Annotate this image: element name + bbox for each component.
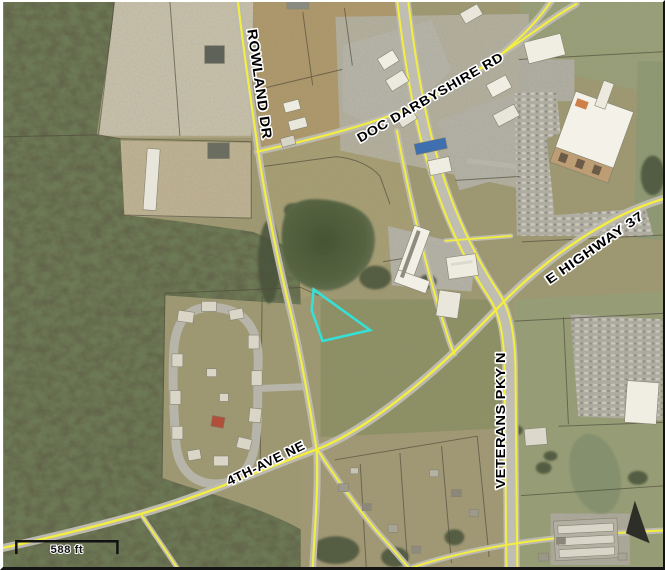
aerial-map: Aerial parcel map with highlighted prope… bbox=[3, 2, 663, 567]
church-building bbox=[524, 427, 547, 446]
road-label-veterans-pky-n: VETERANS PKY N bbox=[493, 352, 508, 489]
motel-building bbox=[446, 254, 478, 280]
scale-bar-label: 588 ft bbox=[51, 544, 84, 556]
red-roof-clubhouse bbox=[211, 415, 226, 428]
map-viewport[interactable]: Aerial parcel map with highlighted prope… bbox=[0, 0, 665, 570]
